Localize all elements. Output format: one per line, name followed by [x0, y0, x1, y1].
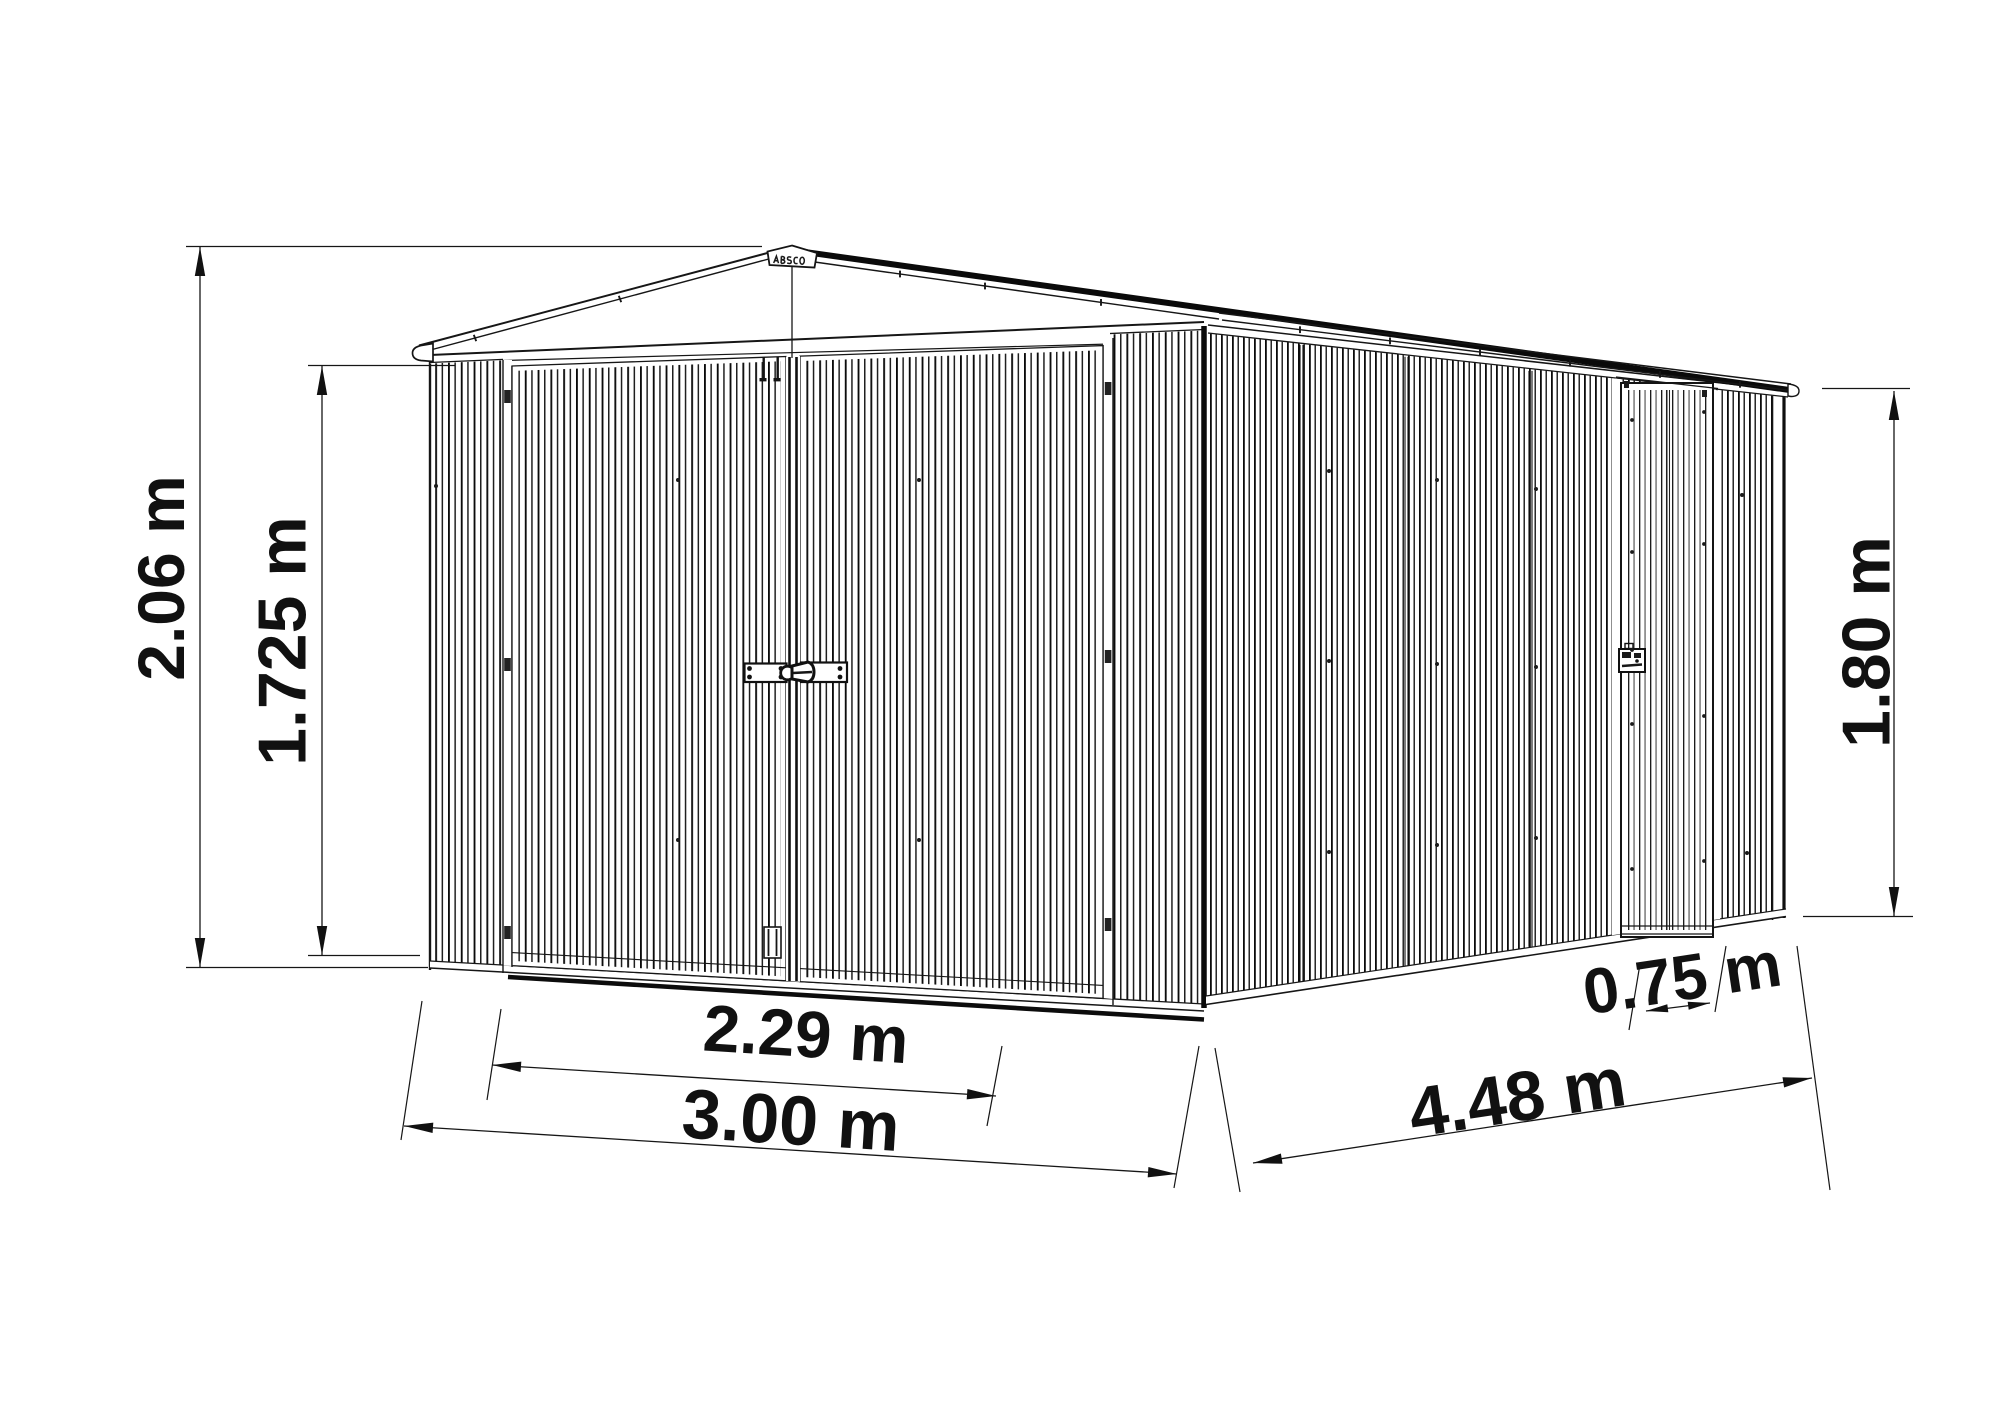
- svg-text:3.00 m: 3.00 m: [680, 1074, 902, 1166]
- svg-text:1.80 m: 1.80 m: [1829, 536, 1905, 748]
- svg-text:1.725 m: 1.725 m: [245, 516, 321, 766]
- svg-text:4.48 m: 4.48 m: [1404, 1042, 1631, 1152]
- svg-text:2.29 m: 2.29 m: [701, 990, 911, 1077]
- svg-text:2.06 m: 2.06 m: [124, 475, 198, 680]
